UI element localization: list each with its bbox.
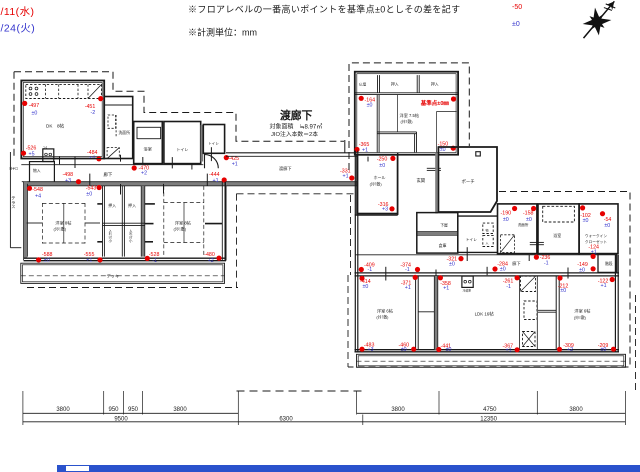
svg-text:±0: ±0 [512,21,520,28]
svg-text:-451: -451 [85,104,96,110]
svg-text:勝手口: 勝手口 [10,167,19,171]
svg-text:JIO注入本数＝2本: JIO注入本数＝2本 [271,130,318,138]
svg-text:洋室 7.5帖: 洋室 7.5帖 [400,112,420,119]
svg-text:+1: +1 [506,348,512,354]
svg-text:-1: -1 [368,267,373,273]
svg-text:-1: -1 [544,261,549,267]
svg-text:±0: ±0 [367,103,373,109]
svg-text:+1: +1 [362,148,368,154]
svg-text:ウォークイン: ウォークイン [585,233,607,238]
svg-text:+2: +2 [141,171,147,177]
svg-text:+1: +1 [232,162,238,168]
svg-text:浴室: 浴室 [144,146,152,153]
svg-text:トイレ: トイレ [208,141,219,145]
svg-text:渡廊下: 渡廊下 [279,165,292,172]
svg-text:6300: 6300 [279,417,293,423]
svg-text:(ﾀﾀﾐ敷): (ﾀﾀﾐ敷) [574,315,587,320]
svg-text:ポーチ: ポーチ [462,178,475,184]
svg-text:倉庫: 倉庫 [439,243,447,248]
svg-text:±0: ±0 [32,111,38,117]
svg-text:3800: 3800 [56,407,70,413]
svg-text:4750: 4750 [483,407,497,413]
svg-text:-250: -250 [377,156,388,162]
svg-text:対象面積 ≒8.97㎡: 対象面積 ≒8.97㎡ [270,122,323,130]
svg-text:押入: 押入 [431,82,439,87]
svg-text:-1: -1 [405,267,410,273]
svg-text:トイレ: トイレ [466,237,478,242]
svg-text:廊下: 廊下 [512,260,520,267]
svg-text:(ﾀﾀﾐ敷): (ﾀﾀﾐ敷) [174,226,187,232]
svg-text:+5: +5 [29,152,35,158]
svg-text:+3: +3 [65,178,71,184]
svg-text:浴室: 浴室 [553,232,561,238]
svg-text:950: 950 [128,407,139,413]
svg-text:玄関: 玄関 [417,177,426,184]
svg-text:+1: +1 [343,174,349,180]
svg-text:-548: -548 [32,187,43,193]
svg-text:洋室 6帖: 洋室 6帖 [574,308,590,315]
svg-text:+1: +1 [443,286,449,292]
svg-text:/11(水): /11(水) [1,6,35,18]
svg-text:12350: 12350 [480,417,497,423]
svg-text:±0: ±0 [503,217,509,223]
svg-text:ｺﾝﾛ: ｺﾝﾛ [43,145,48,149]
svg-text:950: 950 [108,407,119,413]
svg-text:冷蔵庫: 冷蔵庫 [463,289,472,293]
svg-text:廊下: 廊下 [104,171,113,178]
svg-text:階段: 階段 [605,261,613,266]
svg-text:±0: ±0 [401,347,407,353]
svg-text:±0: ±0 [379,163,385,169]
svg-text:(ﾀﾀﾐ敷): (ﾀﾀﾐ敷) [370,181,383,186]
svg-text:3800: 3800 [173,407,187,413]
svg-text:±0: ±0 [363,284,369,290]
svg-text:+1: +1 [213,178,219,184]
svg-text:物: 物 [486,228,489,233]
svg-text:-50: -50 [512,4,522,11]
svg-text:クローゼット: クローゼット [585,239,607,244]
svg-text:押入: 押入 [391,82,399,87]
svg-text:物入: 物入 [33,168,41,173]
svg-text:基準点±0㎜: 基準点±0㎜ [420,99,450,107]
svg-text:9500: 9500 [114,417,128,423]
svg-text:(ﾀﾀﾐ敷): (ﾀﾀﾐ敷) [54,226,67,232]
svg-text:(ﾀﾀﾐ敷): (ﾀﾀﾐ敷) [401,119,414,124]
svg-text:渡廊下: 渡廊下 [280,108,313,122]
svg-text:±0: ±0 [446,347,452,353]
svg-text:テラス: テラス [11,196,16,209]
svg-text:+2: +2 [567,347,573,353]
svg-text:トイレ: トイレ [176,147,188,152]
svg-text:±0: ±0 [560,288,566,294]
svg-text:入: 入 [486,241,489,245]
svg-text:±0: ±0 [449,261,455,267]
svg-text:+1: +1 [86,257,92,263]
svg-text:±0: ±0 [604,223,610,229]
svg-text:(ﾀﾀﾐ敷): (ﾀﾀﾐ敷) [376,314,389,319]
svg-text:デッキ: デッキ [107,273,120,280]
svg-text:洋室 6帖: 洋室 6帖 [377,307,393,314]
svg-text:±0: ±0 [579,268,585,274]
svg-text:-190: -190 [501,211,512,217]
svg-text:+1: +1 [405,285,411,291]
svg-text:-54: -54 [604,217,612,223]
svg-text:+1: +1 [601,283,607,289]
svg-text:±0: ±0 [526,217,532,223]
svg-text:ホール: ホール [374,175,386,180]
svg-text:-543: -543 [86,185,97,191]
svg-text:-158: -158 [523,211,534,217]
svg-text:DK 8帖: DK 8帖 [46,123,65,130]
svg-text:仏壇: 仏壇 [359,82,367,87]
svg-text:+4: +4 [35,194,41,200]
svg-text:LDK 16帖: LDK 16帖 [475,310,495,317]
svg-text:±0: ±0 [500,267,506,273]
svg-text:下屋: 下屋 [440,223,448,228]
svg-text:±0: ±0 [583,218,589,224]
svg-text:-497: -497 [29,103,40,109]
svg-text:±0: ±0 [44,258,50,264]
svg-text:/24(火): /24(火) [1,23,36,35]
svg-text:押入: 押入 [108,202,116,208]
svg-text:-526: -526 [26,145,37,151]
svg-text:※フロアレベルの一番高いポイントを基準点±0としその差を記す: ※フロアレベルの一番高いポイントを基準点±0としその差を記す [188,4,460,15]
svg-text:-2: -2 [91,110,96,116]
svg-text:3800: 3800 [569,407,583,413]
svg-text:±0: ±0 [601,347,607,353]
svg-text:+3: +3 [382,206,388,212]
svg-text:洗面所: 洗面所 [119,130,131,135]
svg-text:-1: -1 [506,284,511,290]
svg-text:3800: 3800 [391,407,405,413]
svg-text:押入: 押入 [128,202,136,208]
svg-text:±0: ±0 [86,191,92,197]
svg-text:+1: +1 [591,249,597,255]
svg-text:+3: +3 [368,347,374,353]
svg-text:※計測単位：mm: ※計測単位：mm [188,27,257,38]
